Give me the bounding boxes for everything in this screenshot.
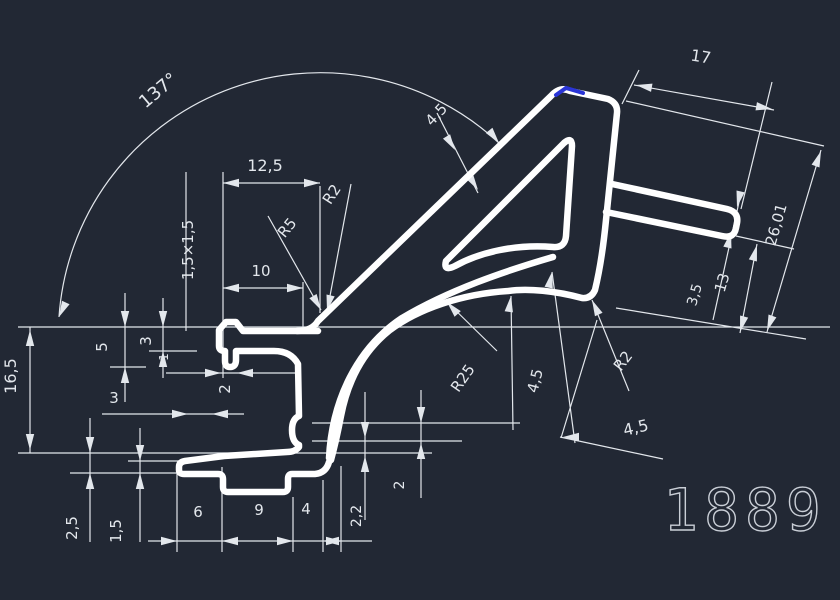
arrowhead [86,473,94,489]
label-dim-2-2: 2,2 [349,505,365,527]
label-dim-4-5-bottom: 4,5 [621,416,650,440]
label-dim-4-5-arm: 4,5 [422,100,451,130]
label-dim-4: 4 [301,500,311,518]
arrowhead [812,150,825,168]
label-dim-3-5: 3,5 [684,282,706,308]
arrowhead [212,410,228,418]
arrowhead [287,284,303,292]
arrowhead [205,369,221,377]
arrowhead [304,179,320,187]
arrowhead [55,301,69,319]
label-dim-1-5x1-5: 1,5×1,5 [179,220,197,280]
profile-triangle-cutout [445,140,572,268]
arrowhead [736,315,748,333]
arrowhead [309,294,324,312]
arrowhead [417,443,425,459]
label-dim-6: 6 [193,503,203,521]
label-dim-1: 1 [157,353,171,361]
label-dim-10: 10 [251,262,270,280]
arrowhead [26,330,34,346]
part-number: 1889 [663,476,827,544]
label-dim-2-5: 2,5 [63,516,81,540]
arrowhead [86,437,94,453]
arrowhead [361,422,369,438]
arrowhead [121,311,129,327]
arrowhead [222,537,238,545]
label-dim-26-01: 26,01 [762,201,791,247]
arrowhead [121,367,129,383]
arrowhead [159,311,167,327]
label-dim-13: 13 [711,271,734,294]
arrowhead [277,537,293,545]
arrowhead [635,81,652,92]
arrowhead [417,407,425,423]
label-radius-r2-upper: R2 [319,181,345,208]
label-dim-4-5-flange: 4,5 [524,367,547,395]
label-radius-r2-lower: R2 [610,348,636,375]
arrowhead [361,456,369,472]
technical-drawing: 137°12,5R2R51,5×1,5104,51726,01133,5R24,… [0,0,840,600]
arrowhead [223,179,239,187]
label-dim-9: 9 [254,501,264,519]
profile-outline [179,88,737,492]
profile-fin-bar [606,184,737,237]
dimension-labels: 137°12,5R2R51,5×1,5104,51726,01133,5R24,… [1,46,791,543]
arrowhead [223,284,239,292]
label-dim-2-groove: 2 [216,384,234,394]
arrowhead [763,315,776,333]
arrowhead [326,537,342,545]
label-dim-17: 17 [689,46,712,68]
profile-foot [179,322,329,492]
label-dim-16-5: 16,5 [1,358,20,394]
arrowhead [756,102,773,113]
arrowhead [26,434,34,450]
cad-canvas: 137°12,5R2R51,5×1,5104,51726,01133,5R24,… [0,0,840,600]
label-dim-12-5: 12,5 [247,156,283,175]
label-dim-3-upper: 3 [137,336,155,346]
arrowhead [505,295,516,312]
arrowhead [161,537,177,545]
label-radius-r25: R25 [447,361,479,396]
arrowhead [172,410,188,418]
label-angle-137: 137° [135,69,182,113]
arrowhead [136,473,144,489]
leader-and-diagonal-lines [59,70,824,459]
arrowhead [237,369,253,377]
label-radius-r5: R5 [274,214,301,241]
label-dim-5: 5 [93,342,111,352]
label-dim-1-5: 1,5 [107,519,125,543]
arrowhead [749,244,761,262]
label-dim-2-notch: 2 [392,481,408,490]
label-dim-3-lower: 3 [109,389,119,407]
arrowhead [588,298,602,316]
